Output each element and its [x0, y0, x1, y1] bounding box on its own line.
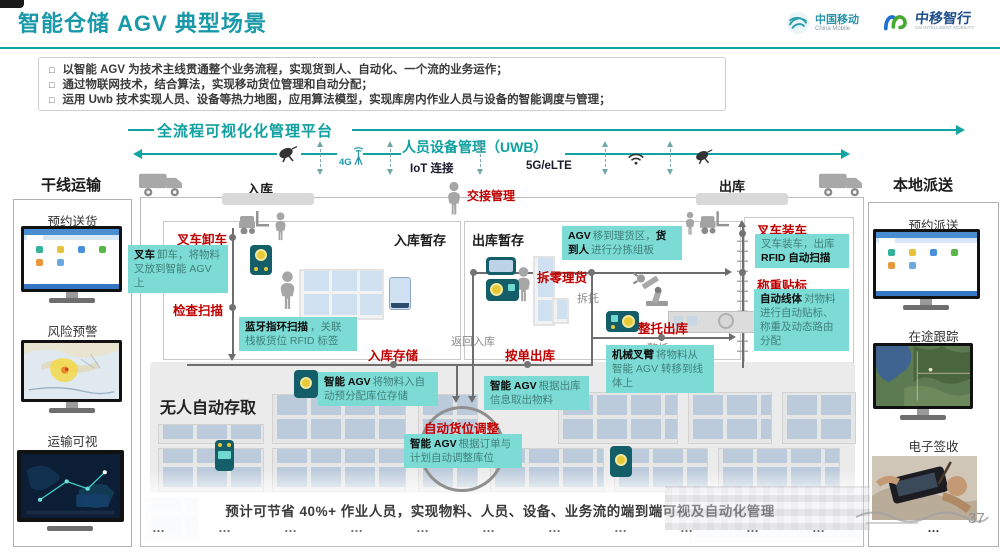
iot-label: IoT 连接: [410, 160, 453, 176]
note-text: 叉车装车，出库: [761, 238, 835, 250]
agv-robot: [250, 245, 272, 275]
note-unload: 叉车卸车，将物料叉放到智能 AGV 上: [128, 245, 228, 293]
platform-label: 全流程可视化化管理平台: [157, 120, 333, 141]
outbound-staging-label: 出库暂存: [472, 230, 524, 249]
note-text: 移到理货区，: [593, 230, 656, 242]
monitor-stand: [49, 298, 95, 303]
note-text: 进行分拣组板: [591, 244, 654, 256]
bullet-2-text: 通过物联网技术，结合算法，实现移动货位管理和自动分配；: [62, 78, 373, 93]
worker-icon: [272, 212, 289, 241]
bullet-1-text: 以智能 AGV 为技术主线贯通整个业务流程，实现货到人、自动化、一个流的业务运作…: [62, 63, 507, 78]
risk-map: [24, 343, 119, 399]
title-rule: [0, 47, 1000, 49]
screen-tabs: [876, 238, 977, 243]
monitor-stand: [900, 415, 946, 420]
rack-shelf: [158, 424, 264, 444]
china-mobile-name: 中国移动: [815, 14, 859, 26]
panel-item-label: 运输可视: [14, 431, 131, 450]
antenna-4g-icon: [352, 146, 365, 167]
footer-dots: …: [614, 520, 627, 535]
monitor-stand: [49, 408, 95, 413]
page-number: 37: [968, 510, 985, 527]
bullet-marker: □: [49, 78, 54, 93]
transport-map: [21, 454, 120, 518]
flow-line-unload: [232, 228, 234, 358]
panel-item-label: 电子签收: [869, 436, 998, 455]
rack-shelf: [782, 392, 856, 444]
flow-arrow-icon: [468, 396, 476, 403]
bullet-marker: □: [49, 63, 54, 78]
page-title: 智能仓储 AGV 典型场景: [18, 6, 267, 38]
platform-line-left-stub: [128, 129, 154, 131]
footer-dots: …: [350, 520, 363, 535]
worker-icon: [276, 270, 299, 311]
uwb-label: 人员设备管理（UWB）: [402, 137, 547, 157]
trunk-transport-header: 干线运输: [41, 174, 101, 195]
agv-robot-loaded: [486, 257, 516, 275]
uplink-arrow-icon: [480, 144, 481, 172]
satellite-icon: [694, 149, 714, 166]
bullet-1: □ 以智能 AGV 为技术主线贯通整个业务流程，实现货到人、自动化、一个流的业务…: [49, 63, 715, 78]
screen-icons: [24, 240, 119, 266]
screen-statusbar: [24, 284, 119, 289]
satellite-icon: [277, 146, 299, 164]
footer-dots: …: [482, 520, 495, 535]
worker-icon: [683, 211, 697, 236]
note-robot-arm: 机械叉臂将物料从智能 AGV 转移到线体上: [606, 345, 714, 393]
china-mobile-icon: [786, 11, 810, 35]
step-palletout-label: 整托出库: [638, 318, 688, 337]
platform-line: [352, 129, 956, 131]
pallet-grid: [299, 269, 384, 320]
note-lead: 智能 AGV: [410, 438, 457, 450]
4g-label: 4G: [339, 157, 352, 168]
forklift-icon: [237, 208, 271, 234]
note-lead: 机械叉臂: [612, 349, 654, 361]
flow-node: [229, 234, 236, 241]
step-handover-label: 交接管理: [467, 187, 515, 204]
china-mobile-sub: China Mobile: [815, 26, 859, 33]
en-route-tracking-screen: [873, 343, 973, 409]
uplink-arrow-icon: [605, 144, 606, 172]
step-check-label: 检查扫描: [173, 300, 223, 319]
transport-visibility-screen: [17, 450, 124, 522]
slide-canvas: 智能仓储 AGV 典型场景 中国移动 China Mobile 中移智行 CM …: [0, 0, 1000, 552]
forklift-icon: [698, 208, 731, 234]
pickup-booking-screen: [873, 229, 980, 299]
tag-depalletize: 拆托: [577, 290, 599, 306]
tag-return: 返回入库: [451, 333, 495, 349]
uplink-arrow-icon: [320, 144, 321, 172]
summary-bullets: □ 以智能 AGV 为技术主线贯通整个业务流程，实现货到人、自动化、一个流的业务…: [38, 57, 726, 111]
auto-storage-label: 无人自动存取: [160, 394, 256, 418]
satellite-map: [876, 346, 970, 406]
wifi-icon: [627, 151, 645, 166]
partner-logo: 中移智行 CM INTELLIGENT MOBILITY: [882, 10, 981, 32]
handover-worker-icon: [444, 181, 464, 216]
agv-robot-palletout: [606, 311, 639, 332]
flow-arrow-icon: [228, 354, 236, 361]
uwb-line-left-arrow-icon: [133, 149, 142, 159]
note-agv-pick: AGV移到理货区，货到人进行分拣组板: [562, 226, 682, 260]
footer-dots: …: [548, 520, 561, 535]
flow-node: [739, 269, 746, 276]
partner-icon: [882, 10, 910, 32]
robot-arm-icon: [633, 272, 673, 308]
agv-robot: [215, 440, 234, 471]
partner-name: 中移智行: [914, 11, 982, 25]
flow-arrow-icon: [738, 220, 746, 227]
risk-warning-screen: [21, 340, 122, 402]
note-lead: 智能 AGV: [324, 376, 371, 388]
delivery-booking-screen: [21, 226, 122, 292]
bullet-3: □ 运用 Uwb 技术实现人员、设备等热力地图，应用算法模型，实现库房内作业人员…: [49, 93, 715, 108]
step-pick-label: 拆零理货: [537, 267, 587, 286]
uwb-line-seg2: [301, 153, 337, 155]
footer-dots: …: [152, 520, 165, 535]
footer-dots: …: [218, 520, 231, 535]
platform-line-arrow-icon: [956, 125, 965, 135]
note-lead: 蓝牙指环扫描: [245, 321, 308, 333]
screen-icons: [876, 243, 977, 269]
bullet-marker: □: [49, 93, 54, 108]
partner-sub: CM INTELLIGENT MOBILITY: [915, 25, 974, 30]
uwb-line-seg1: [141, 153, 277, 155]
note-bluetooth: 蓝牙指环扫描，关联栈板货位 RFID 标签: [239, 317, 357, 351]
monitor-stand: [47, 526, 93, 531]
note-lead: RFID 自动扫描: [761, 252, 830, 264]
watermark-mosaic: [665, 486, 870, 530]
note-agv-store: 智能 AGV将物料入自动预分配库位存储: [318, 372, 438, 406]
conveyor-turntable: [718, 313, 734, 329]
inbound-staging-label: 入库暂存: [394, 230, 446, 249]
flow-line-load: [742, 226, 744, 368]
china-mobile-logo: 中国移动 China Mobile: [786, 11, 859, 35]
screen-statusbar: [876, 291, 977, 296]
flow-line-to-relocate: [456, 364, 458, 398]
footer-dots: …: [416, 520, 429, 535]
bullet-2: □ 通过物联网技术，结合算法，实现移动货位管理和自动分配；: [49, 78, 715, 93]
agv-robot: [294, 370, 318, 398]
note-lead: 智能 AGV: [490, 380, 537, 392]
monitor-stand: [903, 305, 949, 310]
truck-icon: [818, 168, 865, 198]
flow-line-depalletize: [591, 272, 593, 365]
truck-icon: [138, 168, 185, 198]
note-agv-relocate: 智能 AGV根据订单与计划自动调整库位: [404, 434, 522, 468]
step-store-label: 入库存储: [368, 345, 418, 364]
agv-robot: [610, 446, 632, 477]
flow-node: [588, 269, 595, 276]
footer-dots: …: [284, 520, 297, 535]
local-delivery-header: 本地派送: [893, 174, 953, 195]
screen-tabs: [24, 235, 119, 240]
uplink-arrow-icon: [390, 144, 391, 172]
note-autoline: 自动线体对物料进行自动贴标、称重及动态路由分配: [754, 289, 849, 351]
5g-label: 5G/eLTE: [526, 160, 572, 172]
note-lead: 叉车: [134, 249, 155, 261]
uwb-line-seg3: [363, 153, 401, 155]
uwb-line-right-arrow-icon: [841, 149, 850, 159]
note-lead: 自动线体: [760, 293, 802, 305]
uplink-arrow-icon: [670, 144, 671, 172]
outbound-dock-bar: [696, 193, 788, 205]
note-load-rfid: 叉车装车，出库RFID 自动扫描: [755, 234, 849, 268]
step-orderout-label: 按单出库: [505, 345, 555, 364]
storage-cabinet: [389, 277, 411, 310]
note-lead: AGV: [568, 230, 591, 242]
flow-node: [229, 304, 236, 311]
rack-shelf: [688, 392, 772, 444]
flow-arrow-icon: [729, 333, 736, 341]
panel-item-label: 风险预警: [14, 321, 131, 340]
inbound-dock-bar: [222, 193, 314, 205]
bullet-3-text: 运用 Uwb 技术实现人员、设备等热力地图，应用算法模型，实现库房内作业人员与设…: [62, 93, 610, 108]
flow-arrow-icon: [725, 268, 732, 276]
flow-node: [470, 269, 477, 276]
agv-robot: [486, 279, 519, 301]
flow-arrow-icon: [452, 396, 460, 403]
note-agv-retrieve: 智能 AGV根据出库信息取出物料: [484, 376, 589, 410]
pallet-cell: [552, 298, 569, 324]
flow-node: [739, 230, 746, 237]
